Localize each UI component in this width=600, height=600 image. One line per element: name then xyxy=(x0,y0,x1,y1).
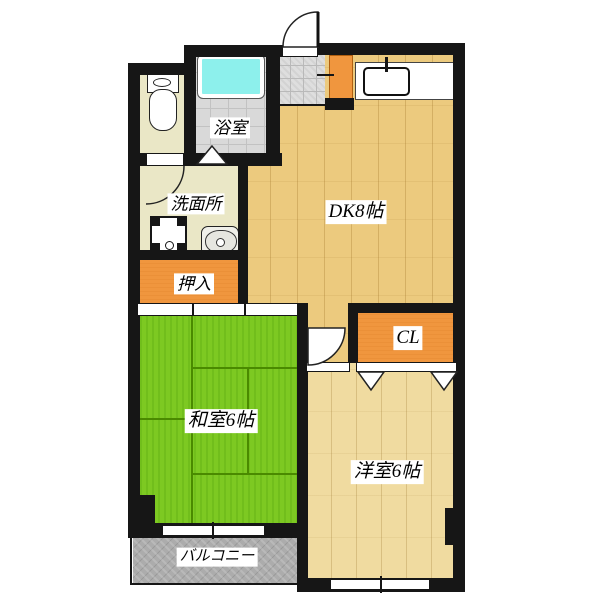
dining-kitchen-label: DK8帖 xyxy=(326,200,387,224)
cl-folding-door-icon xyxy=(358,372,384,390)
bathroom-label: 浴室 xyxy=(210,117,250,138)
western-room-label: 洋室6帖 xyxy=(351,460,424,484)
japanese-room-label: 和室6帖 xyxy=(185,409,258,433)
cl-label: CL xyxy=(393,326,422,350)
oshiire-label: 押入 xyxy=(174,273,214,294)
balcony-label: バルコニー xyxy=(177,548,258,567)
floor-plan: 浴室 洗面所 押入 DK8帖 CL 和室6帖 洋室6帖 バルコニー xyxy=(0,0,600,600)
interior-door-arc-icon xyxy=(308,328,345,365)
cl-folding-door-icon xyxy=(431,372,457,390)
bathroom-door-triangle-icon xyxy=(197,146,227,164)
entrance-door-arc-icon xyxy=(283,12,318,47)
door-symbols-layer xyxy=(0,0,600,600)
washroom-label: 洗面所 xyxy=(168,193,225,214)
